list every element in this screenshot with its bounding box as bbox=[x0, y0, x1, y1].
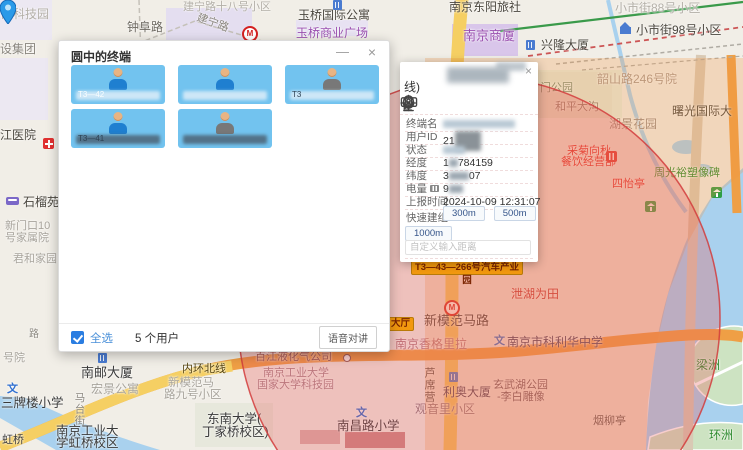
terminal-card[interactable]: T3—41 bbox=[71, 109, 165, 148]
field-value: 307 bbox=[443, 170, 533, 183]
quick-group-row1: 300m500m bbox=[443, 206, 536, 221]
hall-marker-label[interactable]: 大厅 bbox=[387, 317, 414, 331]
user-avatar-icon bbox=[216, 68, 234, 90]
redacted-name-bar bbox=[183, 135, 267, 144]
field-value bbox=[443, 118, 533, 131]
field-value bbox=[443, 144, 533, 157]
terminal-name-fragment: T3—42 bbox=[78, 91, 104, 99]
close-icon[interactable]: × bbox=[368, 44, 376, 60]
redacted-value bbox=[449, 185, 463, 193]
minimize-icon[interactable]: — bbox=[336, 44, 349, 59]
redacted-value bbox=[449, 159, 458, 167]
redacted-value bbox=[443, 120, 515, 128]
select-all-label[interactable]: 全选 bbox=[90, 330, 113, 346]
terminal-card[interactable]: T3 bbox=[285, 65, 379, 104]
user-avatar-icon bbox=[109, 112, 127, 134]
chat-icon[interactable] bbox=[400, 94, 418, 112]
terminal-card[interactable]: T3—42 bbox=[71, 65, 165, 104]
user-count: 5 个用户 bbox=[135, 330, 179, 346]
quick-group-300m[interactable]: 300m bbox=[443, 206, 485, 221]
field-row: 纬度307 bbox=[405, 170, 533, 184]
field-row: 终端名 bbox=[405, 118, 533, 132]
panel-action-row bbox=[400, 94, 538, 115]
terminal-title-redacted bbox=[496, 62, 526, 71]
user-avatar-icon bbox=[109, 68, 127, 90]
redacted-value bbox=[449, 172, 469, 180]
field-value: 9 bbox=[443, 183, 533, 196]
select-all-checkbox[interactable] bbox=[71, 331, 84, 344]
voice-intercom-button[interactable]: 语音对讲 bbox=[319, 326, 377, 349]
field-row: 电量9 bbox=[405, 183, 533, 197]
field-label: 上报时间 bbox=[406, 196, 448, 209]
panel-close-icon[interactable]: × bbox=[525, 64, 532, 78]
dialog-footer: 全选 5 个用户 语音对讲 bbox=[59, 323, 389, 351]
field-row: 经度1784159 bbox=[405, 157, 533, 171]
quick-group-500m[interactable]: 500m bbox=[494, 206, 536, 221]
terminal-name-fragment: T3 bbox=[292, 91, 301, 99]
terminal-card[interactable] bbox=[178, 65, 272, 104]
redacted-name-bar bbox=[183, 91, 267, 100]
map-canvas[interactable]: 际科技园设集团钟阜路建宁路十八号小区建宁路玉桥国际公寓玉桥商业广场南京东阳旅社南… bbox=[0, 0, 743, 450]
park-marker-label[interactable]: T3—43—266号汽车产业园 bbox=[411, 260, 523, 275]
terminals-dialog: 圆中的终端 — × T3—42T3T3—41 全选 5 个用户 语音对讲 bbox=[58, 40, 390, 352]
field-label: 状态 bbox=[406, 144, 427, 157]
field-row: 用户ID21 bbox=[405, 131, 533, 145]
dialog-title: 圆中的终端 bbox=[71, 48, 131, 65]
terminal-card-grid: T3—42T3T3—41 bbox=[71, 65, 379, 148]
redacted-value bbox=[443, 146, 465, 154]
quick-group-1000m[interactable]: 1000m bbox=[405, 226, 452, 241]
field-label: 纬度 bbox=[406, 170, 427, 183]
terminal-card[interactable] bbox=[178, 109, 272, 148]
user-avatar-icon bbox=[323, 68, 341, 90]
divider bbox=[405, 258, 533, 259]
user-avatar-icon bbox=[216, 112, 234, 134]
field-label: 用户ID bbox=[406, 131, 438, 144]
terminal-title-suffix: 线) bbox=[404, 78, 420, 95]
terminal-info-panel: × 线) bbox=[400, 62, 538, 262]
field-label: 电量 bbox=[406, 183, 439, 196]
field-label: 经度 bbox=[406, 157, 427, 170]
custom-distance-input[interactable] bbox=[405, 240, 531, 255]
field-label: 终端名 bbox=[406, 118, 438, 131]
field-value: 1784159 bbox=[443, 157, 533, 170]
terminal-name-fragment: T3—41 bbox=[78, 135, 104, 143]
map-pin-icon[interactable] bbox=[0, 0, 16, 24]
quick-group-row2: 1000m bbox=[405, 223, 452, 241]
redacted-name-bar bbox=[290, 91, 374, 100]
